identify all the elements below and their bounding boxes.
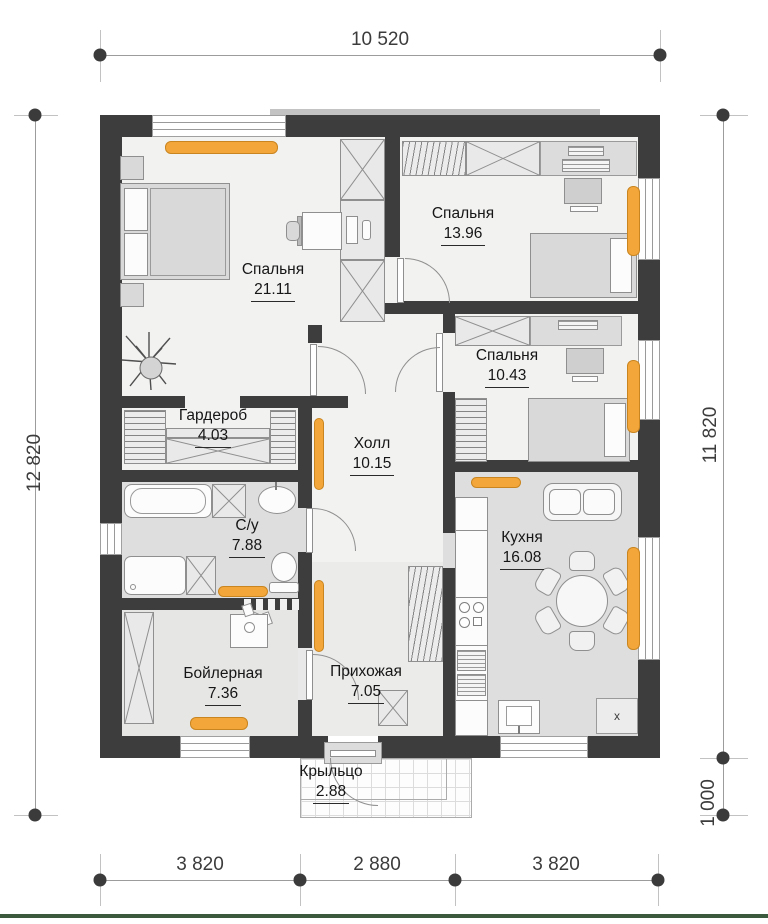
- radiator: [190, 717, 248, 730]
- speaker-icon: [362, 220, 371, 240]
- closet-hangers: [455, 398, 487, 462]
- dim-dot: [94, 49, 107, 62]
- floor-plan-canvas: 10 520 12 820 11 820 1 000 3 820 2 880 3…: [0, 0, 768, 924]
- sink-tap-icon: [518, 726, 520, 734]
- room-area: 2.88: [313, 782, 349, 804]
- room-name: Спальня: [213, 260, 333, 280]
- wall-segment: [100, 470, 298, 482]
- dining-set: [556, 575, 608, 627]
- stove-control-icon: [473, 617, 482, 626]
- dim-dot: [654, 49, 667, 62]
- kitchen-corner-box-label: x: [597, 699, 637, 733]
- room-label-bedroom-3: Спальня 10.43: [447, 346, 567, 388]
- room-label-kitchen: Кухня 16.08: [462, 528, 582, 570]
- dim-dot: [717, 109, 730, 122]
- nightstand: [120, 283, 144, 307]
- nightstand: [120, 156, 144, 180]
- washing-machine: [186, 556, 216, 595]
- window: [100, 523, 122, 555]
- keyboard-icon: [572, 376, 598, 382]
- dim-label-right-upper: 11 820: [700, 375, 722, 495]
- dim-dot: [449, 874, 462, 887]
- window: [500, 736, 588, 758]
- door-leaf: [310, 344, 317, 396]
- room-label-boiler: Бойлерная 7.36: [163, 664, 283, 706]
- room-name: Крыльцо: [271, 762, 391, 782]
- room-label-hall: Холл 10.15: [312, 434, 432, 476]
- window: [152, 115, 286, 137]
- room-name: Спальня: [447, 346, 567, 366]
- bathtub-inner: [130, 488, 206, 514]
- room-name: Кухня: [462, 528, 582, 548]
- room-name: Бойлерная: [163, 664, 283, 684]
- room-area: 7.05: [348, 682, 384, 704]
- room-area: 10.15: [350, 454, 395, 476]
- room-label-entry-hall: Прихожая 7.05: [306, 662, 426, 704]
- chair: [569, 631, 595, 651]
- toilet-tank: [269, 582, 299, 593]
- dim-dot: [29, 809, 42, 822]
- window: [180, 736, 250, 758]
- radiator: [218, 586, 268, 597]
- sofa-cushion: [549, 489, 581, 515]
- sink-drain-icon: [244, 622, 255, 633]
- counter-divider: [455, 700, 488, 701]
- radiator: [627, 360, 640, 433]
- room-area: 4.03: [195, 426, 231, 448]
- counter-divider: [455, 645, 488, 646]
- wardrobe-cabinet: [466, 141, 540, 176]
- closet-hangers: [270, 410, 296, 464]
- monitor-icon: [566, 348, 604, 374]
- entrance-door-leaf: [330, 750, 376, 757]
- kitchen-corner-box: x: [596, 698, 638, 734]
- sofa-cushion: [583, 489, 615, 515]
- room-name: С/у: [187, 516, 307, 536]
- room-label-bedroom-1: Спальня 21.11: [213, 260, 333, 302]
- dining-table: [556, 575, 608, 627]
- dim-label-left: 12 820: [24, 403, 46, 523]
- washing-machine: [212, 484, 246, 518]
- room-label-bathroom: С/у 7.88: [187, 516, 307, 558]
- wall-segment: [298, 552, 312, 648]
- kitchen-sink-bowl: [506, 706, 532, 726]
- dim-label-bottom-center: 2 880: [327, 854, 427, 876]
- pillow: [124, 188, 148, 231]
- radiator: [165, 141, 278, 154]
- chair: [286, 221, 300, 241]
- dim-dot: [652, 874, 665, 887]
- room-label-wardrobe: Гардероб 4.03: [153, 406, 273, 448]
- plant-icon: [118, 326, 180, 394]
- page-bottom-accent-line: [0, 914, 768, 918]
- pillow: [604, 403, 626, 457]
- closet-hangers: [402, 141, 466, 176]
- room-area: 7.36: [205, 684, 241, 706]
- door-leaf: [397, 258, 404, 303]
- radiator: [627, 186, 640, 256]
- dim-label-bottom-left: 3 820: [150, 854, 250, 876]
- room-area: 13.96: [441, 224, 486, 246]
- wardrobe-cabinet: [340, 260, 385, 322]
- sink: [258, 486, 296, 514]
- room-area: 7.88: [229, 536, 265, 558]
- wall-segment: [308, 325, 322, 343]
- door-leaf: [306, 508, 313, 553]
- window: [638, 178, 660, 260]
- dim-label-right-lower: 1 000: [698, 743, 720, 863]
- wall-segment: [443, 314, 455, 333]
- dim-label-bottom-right: 3 820: [506, 854, 606, 876]
- radiator: [314, 580, 324, 652]
- shower-drain-icon: [130, 584, 136, 590]
- appliance-icon: [457, 674, 486, 696]
- window: [638, 340, 660, 420]
- keyboard-icon: [570, 206, 598, 212]
- stove-burner-icon: [459, 617, 470, 628]
- doorway-kitchen: [443, 533, 455, 568]
- room-name: Холл: [312, 434, 432, 454]
- appliance-icon: [457, 650, 486, 671]
- keyboard-icon: [562, 159, 610, 172]
- entry-closet-hangers: [408, 566, 443, 662]
- dim-line-top: [100, 55, 660, 56]
- room-label-bedroom-2: Спальня 13.96: [403, 204, 523, 246]
- wall-segment: [443, 568, 455, 736]
- stove-burner-icon: [459, 602, 470, 613]
- pillow: [124, 233, 148, 276]
- sink-tap-icon: [275, 482, 277, 490]
- printer-icon: [558, 320, 598, 330]
- radiator: [471, 477, 521, 488]
- stove-burner-icon: [473, 602, 484, 613]
- room-area: 21.11: [251, 280, 295, 302]
- wall-segment: [298, 700, 312, 736]
- radiator: [627, 547, 640, 650]
- room-label-porch: Крыльцо 2.88: [271, 762, 391, 804]
- room-name: Прихожая: [306, 662, 426, 682]
- wardrobe-cabinet: [340, 139, 385, 200]
- room-name: Спальня: [403, 204, 523, 224]
- boiler-cabinet: [124, 612, 154, 724]
- monitor-icon: [564, 178, 602, 204]
- dim-line-right: [723, 115, 724, 815]
- dim-dot: [294, 874, 307, 887]
- printer-icon: [568, 146, 604, 156]
- room-area: 10.43: [485, 366, 530, 388]
- wardrobe-cabinet: [455, 316, 530, 346]
- window: [638, 537, 660, 660]
- dim-dot: [29, 109, 42, 122]
- dim-label-top: 10 520: [320, 29, 440, 51]
- pc-tower-icon: [346, 216, 358, 244]
- counter-divider: [455, 597, 488, 598]
- wall-segment: [298, 408, 312, 508]
- dim-line-bottom: [100, 880, 658, 881]
- room-name: Гардероб: [153, 406, 273, 426]
- wall-segment: [385, 137, 400, 257]
- dim-dot: [94, 874, 107, 887]
- desk: [302, 212, 342, 250]
- room-area: 16.08: [500, 548, 545, 570]
